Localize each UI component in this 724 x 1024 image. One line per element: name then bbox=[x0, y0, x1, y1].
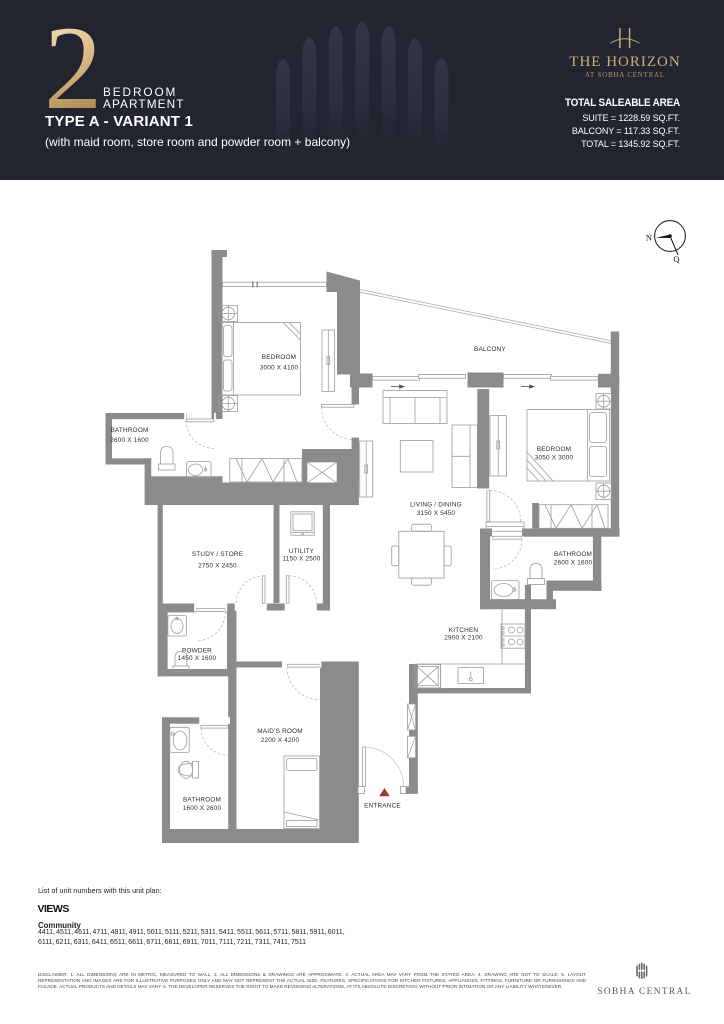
svg-text:STUDY / STORE: STUDY / STORE bbox=[192, 551, 243, 558]
svg-text:3150 X 5450: 3150 X 5450 bbox=[417, 510, 456, 517]
svg-text:2900 X 2100: 2900 X 2100 bbox=[444, 635, 483, 642]
svg-text:1150 X 2500: 1150 X 2500 bbox=[283, 556, 321, 563]
svg-text:LIVING / DINING: LIVING / DINING bbox=[410, 502, 462, 509]
svg-text:MAID’S ROOM: MAID’S ROOM bbox=[257, 728, 303, 735]
svg-text:POWDER: POWDER bbox=[182, 648, 212, 655]
svg-text:3050 X 3000: 3050 X 3000 bbox=[535, 455, 574, 462]
svg-text:2600 X 1600: 2600 X 1600 bbox=[554, 560, 593, 567]
svg-text:BATHROOM: BATHROOM bbox=[554, 551, 592, 558]
svg-text:BATHROOM: BATHROOM bbox=[183, 797, 221, 804]
svg-text:2200 X 4200: 2200 X 4200 bbox=[261, 737, 300, 744]
svg-text:2750 X 2450: 2750 X 2450 bbox=[198, 563, 237, 570]
svg-text:BEDROOM: BEDROOM bbox=[537, 446, 571, 453]
svg-text:BATHROOM: BATHROOM bbox=[110, 427, 148, 434]
svg-text:2600 X 1600: 2600 X 1600 bbox=[110, 437, 149, 444]
svg-text:N: N bbox=[646, 233, 652, 243]
svg-text:KITCHEN: KITCHEN bbox=[449, 627, 479, 634]
svg-text:BALCONY: BALCONY bbox=[474, 346, 506, 353]
svg-text:ENTRANCE: ENTRANCE bbox=[364, 803, 401, 810]
svg-text:Q: Q bbox=[673, 254, 679, 264]
svg-text:3000 X 4100: 3000 X 4100 bbox=[260, 365, 299, 372]
svg-text:BEDROOM: BEDROOM bbox=[262, 354, 296, 361]
svg-text:UTILITY: UTILITY bbox=[289, 548, 315, 555]
svg-text:1600 X 2600: 1600 X 2600 bbox=[183, 805, 222, 812]
svg-text:1450 X 1600: 1450 X 1600 bbox=[178, 655, 217, 662]
